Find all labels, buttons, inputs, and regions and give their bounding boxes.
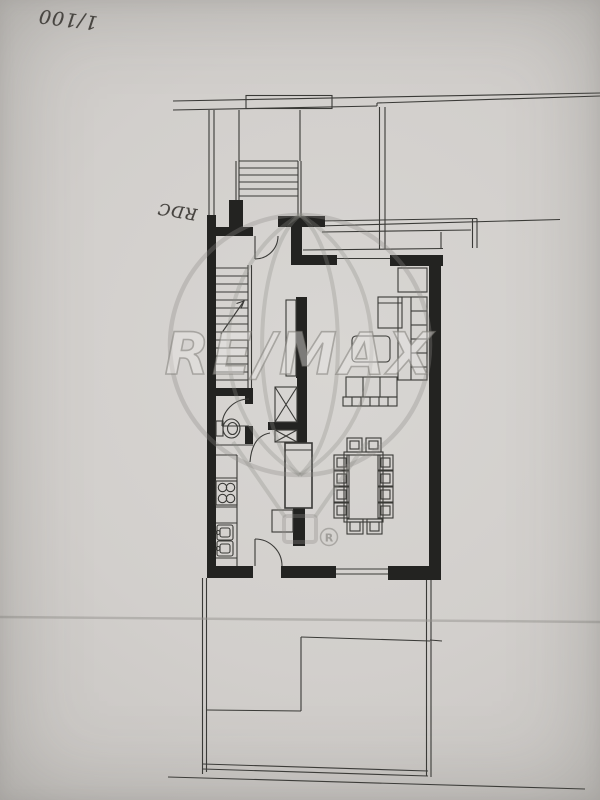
wall-bottom-right <box>388 566 441 580</box>
wall-wc-right-upper <box>245 396 253 404</box>
hob-burner <box>218 483 226 491</box>
wall-left <box>207 215 216 578</box>
street-upper-edge <box>173 93 600 101</box>
dining-chair-inner <box>381 506 390 515</box>
terrace-edge-tick <box>430 640 442 641</box>
floor-plan-svg: RE/MAXR <box>0 0 600 800</box>
dining-chair-inner <box>337 506 346 515</box>
sink-basin-inner <box>220 544 230 553</box>
terrace-edge <box>301 637 430 641</box>
paper-crease <box>0 617 600 622</box>
watermark-brand-text: RE/MAX <box>165 320 436 388</box>
neighbor-boundary <box>322 230 471 232</box>
dining-table <box>344 452 383 522</box>
wall-living-top-left <box>296 255 337 265</box>
entrance-stoop <box>246 96 332 109</box>
garden-door-swing <box>255 539 282 566</box>
hob-burner <box>226 494 234 502</box>
watermark-balloon-cable <box>233 442 285 517</box>
sink-basin <box>217 525 233 540</box>
dining-chair-inner <box>381 458 390 467</box>
dining-chair-inner <box>350 441 359 449</box>
wall-bottom-left <box>207 566 253 578</box>
wall-pier <box>229 200 243 227</box>
floor-plan-photo: RE/MAXR 1/100 RDC <box>0 0 600 800</box>
toilet-bowl-inner <box>228 423 238 435</box>
watermark-registered-letter: R <box>325 532 334 545</box>
dining-chair-inner <box>370 522 379 531</box>
hob-burner <box>218 494 226 502</box>
wall-right <box>429 255 441 580</box>
dining-chair-inner <box>337 490 346 499</box>
rear-lane-line <box>168 777 585 789</box>
wall-wc-top <box>207 388 253 396</box>
terrace-edge <box>207 710 301 711</box>
dining-chair <box>367 519 382 534</box>
dining-chair-inner <box>381 490 390 499</box>
hob-burner <box>226 483 234 491</box>
wall-bottom-mid <box>281 566 336 578</box>
dining-chair-inner <box>381 474 390 483</box>
dining-chair-inner <box>350 522 360 531</box>
sink-basin-inner <box>220 528 230 537</box>
sink-basin <box>217 541 233 556</box>
dining-chair <box>347 519 363 534</box>
